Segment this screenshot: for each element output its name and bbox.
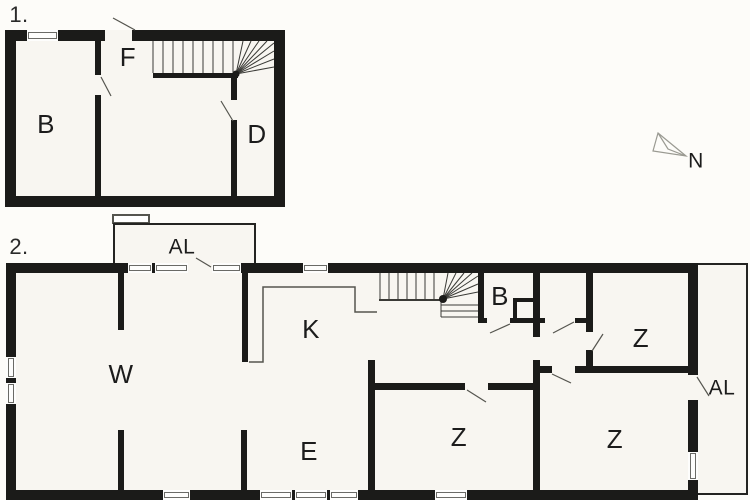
floor-plan-page: { "document": { "type": "floor-plan", "f… [0,0,750,500]
window [303,263,328,273]
window [212,263,241,273]
wall-segment [488,383,533,390]
window [27,30,58,41]
door-opening [105,30,132,41]
floor-1-number: 1. [9,4,28,26]
wall-segment [575,318,589,323]
window [155,263,188,273]
window [435,490,467,500]
room-label-al-right: AL [709,378,736,399]
wall-segment [242,273,248,362]
wall-segment [6,263,698,273]
door-opening [688,375,698,400]
wall-segment [241,430,247,490]
compass-n-label: N [688,151,704,172]
wall-segment [533,273,540,337]
door-opening [188,263,212,273]
window [688,452,698,480]
wall-segment [118,430,124,490]
window [6,383,16,404]
room-label-z-bottom-right: Z [607,426,623,452]
stairs-edge-wall [153,73,238,78]
wall-segment [575,366,688,373]
cubicle-wall [513,298,540,302]
wall-segment [231,120,237,196]
wall-segment [231,78,237,100]
wall-segment [95,41,101,75]
room-label-z-top-right: Z [633,325,649,351]
wall-segment [538,366,552,373]
window [260,490,292,500]
wall-segment [5,30,16,207]
wall-segment [5,196,285,207]
room-label-b2: B [491,283,509,309]
room-label-al-top: AL [169,237,196,258]
room-label-e: E [300,438,318,464]
room-label-k: K [302,316,320,342]
room-label-f: F [120,44,136,70]
window [330,490,358,500]
floor-1-plan [0,0,300,215]
wall-segment [95,95,101,196]
room-label-w: W [108,361,133,387]
wall-segment [478,318,487,323]
wall-segment [118,273,124,330]
wall-segment [372,383,465,390]
wall-segment [586,273,593,332]
window [128,263,152,273]
wall-segment [6,263,16,500]
room-label-d: D [247,121,266,147]
window [295,490,327,500]
room-label-b1: B [37,111,55,137]
floor-2-number: 2. [9,236,28,258]
wall-segment [533,360,540,490]
wall-segment [478,273,484,322]
floor-2-plan [0,210,750,500]
window [6,357,16,378]
room-label-z-bottom-middle: Z [451,424,467,450]
window [163,490,190,500]
wall-segment [274,30,285,207]
wall-segment [510,318,545,323]
wall-segment [368,360,375,490]
north-arrow-icon [653,133,686,156]
